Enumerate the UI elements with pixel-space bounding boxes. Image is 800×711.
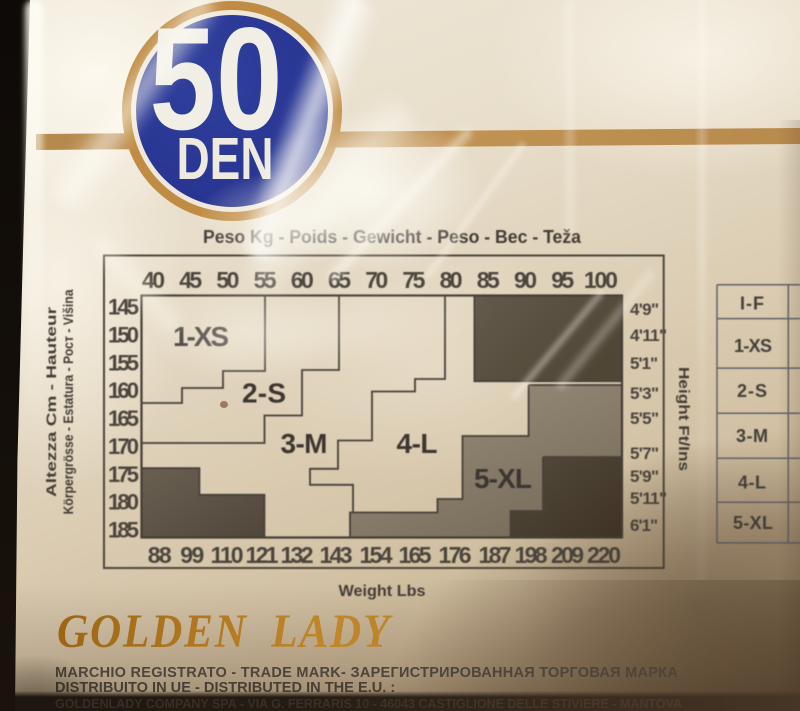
svg-text:Körpergrösse - Estatura - Рост: Körpergrösse - Estatura - Рост - Višina [61, 289, 76, 514]
svg-text:90: 90 [514, 267, 537, 293]
svg-text:121: 121 [246, 542, 279, 568]
svg-text:132: 132 [281, 542, 314, 568]
svg-text:Weight Lbs: Weight Lbs [339, 583, 426, 600]
svg-text:99: 99 [180, 542, 204, 568]
svg-text:I-F: I-F [740, 293, 764, 313]
svg-text:175: 175 [108, 462, 139, 487]
svg-text:88: 88 [148, 542, 172, 568]
svg-text:2-S: 2-S [737, 381, 767, 401]
svg-text:160: 160 [108, 378, 139, 403]
svg-text:5'3": 5'3" [630, 384, 659, 403]
svg-text:165: 165 [399, 542, 432, 568]
svg-text:143: 143 [320, 542, 353, 568]
svg-text:180: 180 [108, 490, 139, 515]
svg-text:3-M: 3-M [281, 428, 328, 459]
svg-text:100: 100 [584, 267, 618, 293]
svg-text:170: 170 [108, 434, 139, 459]
svg-text:Altezza Cm - Hauteur: Altezza Cm - Hauteur [43, 306, 59, 497]
svg-text:4'11": 4'11" [630, 326, 667, 345]
svg-text:150: 150 [108, 322, 139, 347]
svg-text:155: 155 [108, 350, 139, 375]
svg-text:165: 165 [108, 406, 139, 431]
svg-text:110: 110 [211, 542, 244, 568]
svg-text:5'1": 5'1" [630, 354, 658, 373]
svg-text:95: 95 [551, 267, 574, 293]
svg-text:154: 154 [360, 542, 393, 568]
svg-text:176: 176 [439, 542, 472, 568]
svg-text:5'5": 5'5" [630, 409, 659, 428]
svg-text:1-XS: 1-XS [734, 336, 772, 356]
svg-text:187: 187 [479, 542, 512, 568]
svg-text:4-L: 4-L [397, 428, 438, 459]
svg-text:185: 185 [108, 518, 139, 543]
